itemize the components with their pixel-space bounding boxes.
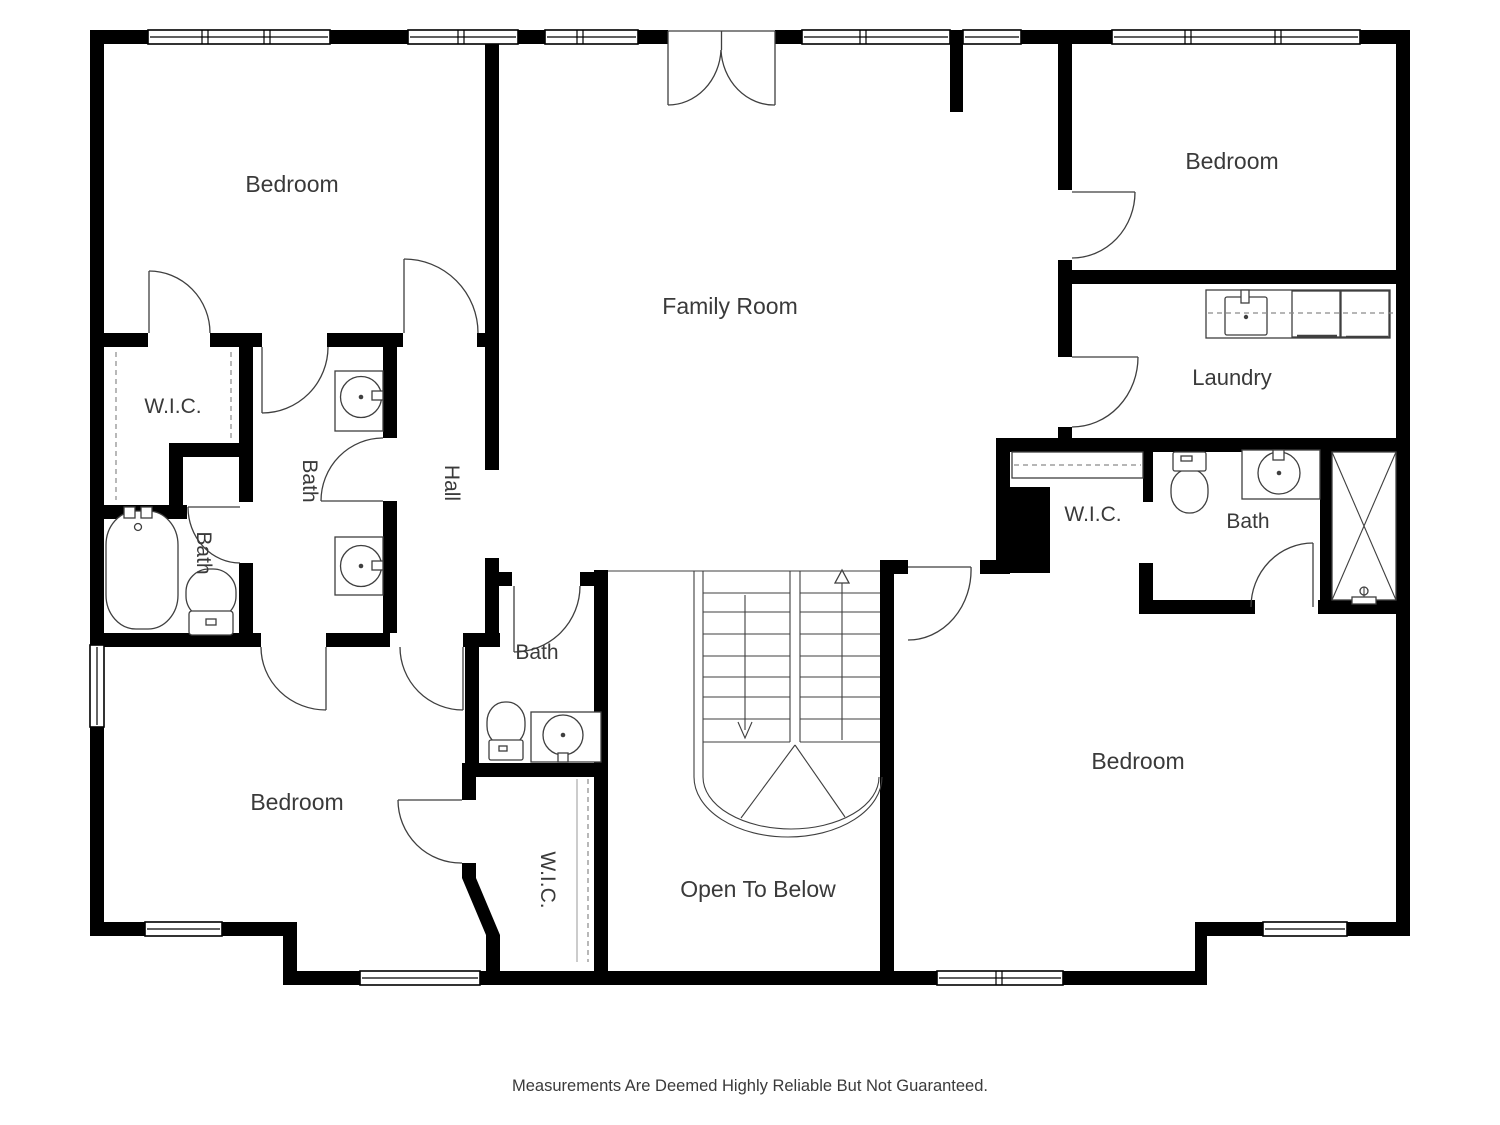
tub-faucet-icon (124, 507, 135, 518)
room-labels: Bedroom Family Room Bedroom Laundry W.I.… (144, 148, 1278, 909)
laundry-fixtures (1206, 290, 1394, 338)
shower-valve-icon (1352, 597, 1376, 604)
curved-landing-outer (694, 777, 882, 837)
door (262, 347, 328, 413)
stairs-up-arrow-icon (835, 570, 849, 740)
door (149, 271, 210, 333)
door (400, 647, 463, 710)
bath-middle-fixtures (335, 371, 383, 595)
window (1263, 922, 1347, 936)
door (1251, 543, 1313, 607)
wall-pier (950, 30, 963, 112)
closet-details (116, 352, 1143, 962)
door (1072, 192, 1135, 258)
door (321, 438, 383, 501)
stairs-down-arrow-icon (738, 595, 752, 738)
room-label-bedroom-top-right: Bedroom (1185, 148, 1278, 174)
window (408, 30, 518, 44)
room-label-wic-top-left: W.I.C. (144, 395, 201, 418)
room-label-bedroom-bottom-left: Bedroom (250, 789, 343, 815)
window (148, 30, 330, 44)
room-label-bath-center: Bath (515, 641, 558, 664)
french-doors-icon (668, 30, 775, 105)
room-label-wic-center: W.I.C. (536, 851, 559, 908)
room-label-bath-middle: Bath (298, 459, 321, 502)
vanity-sink-icon (1242, 450, 1320, 499)
stair-treads (703, 593, 880, 742)
vanity-sink-icon (531, 712, 601, 762)
room-label-open-to-below: Open To Below (680, 876, 836, 902)
window (963, 30, 1021, 44)
door (1072, 357, 1138, 427)
window (90, 645, 104, 727)
toilet-icon (487, 702, 525, 760)
door (398, 800, 462, 863)
room-label-bath-right: Bath (1226, 510, 1269, 533)
toilet-icon (1171, 452, 1208, 513)
vanity-sink-icon (335, 371, 383, 431)
window (802, 30, 950, 44)
vanity-sink-icon (335, 537, 383, 595)
toilet-icon (186, 569, 236, 635)
room-label-laundry: Laundry (1192, 365, 1272, 390)
room-label-bath-left: Bath (192, 531, 215, 574)
window (360, 971, 480, 985)
room-label-bedroom-bottom-right: Bedroom (1091, 748, 1184, 774)
window (545, 30, 638, 44)
dryer-icon (1341, 291, 1389, 337)
floor-plan-page: Bedroom Family Room Bedroom Laundry W.I.… (0, 0, 1500, 1125)
washer-icon (1292, 291, 1340, 337)
shower-icon (1332, 452, 1396, 604)
window (937, 971, 1063, 985)
stairs (608, 570, 882, 837)
door (404, 259, 478, 333)
room-label-wic-right: W.I.C. (1064, 503, 1121, 526)
bath-right-fixtures (1171, 450, 1396, 604)
disclaimer-text: Measurements Are Deemed Highly Reliable … (512, 1077, 988, 1095)
bathtub-icon (106, 511, 178, 629)
bath-center-fixtures (487, 702, 601, 762)
room-label-family-room: Family Room (662, 293, 797, 319)
bath-left-fixtures (106, 507, 236, 635)
door (908, 567, 971, 640)
window (1112, 30, 1360, 44)
window (145, 922, 222, 936)
room-label-hall: Hall (440, 465, 463, 501)
room-label-bedroom-top-left: Bedroom (245, 171, 338, 197)
floor-plan-drawing: Bedroom Family Room Bedroom Laundry W.I.… (0, 0, 1500, 1125)
door (261, 647, 326, 710)
